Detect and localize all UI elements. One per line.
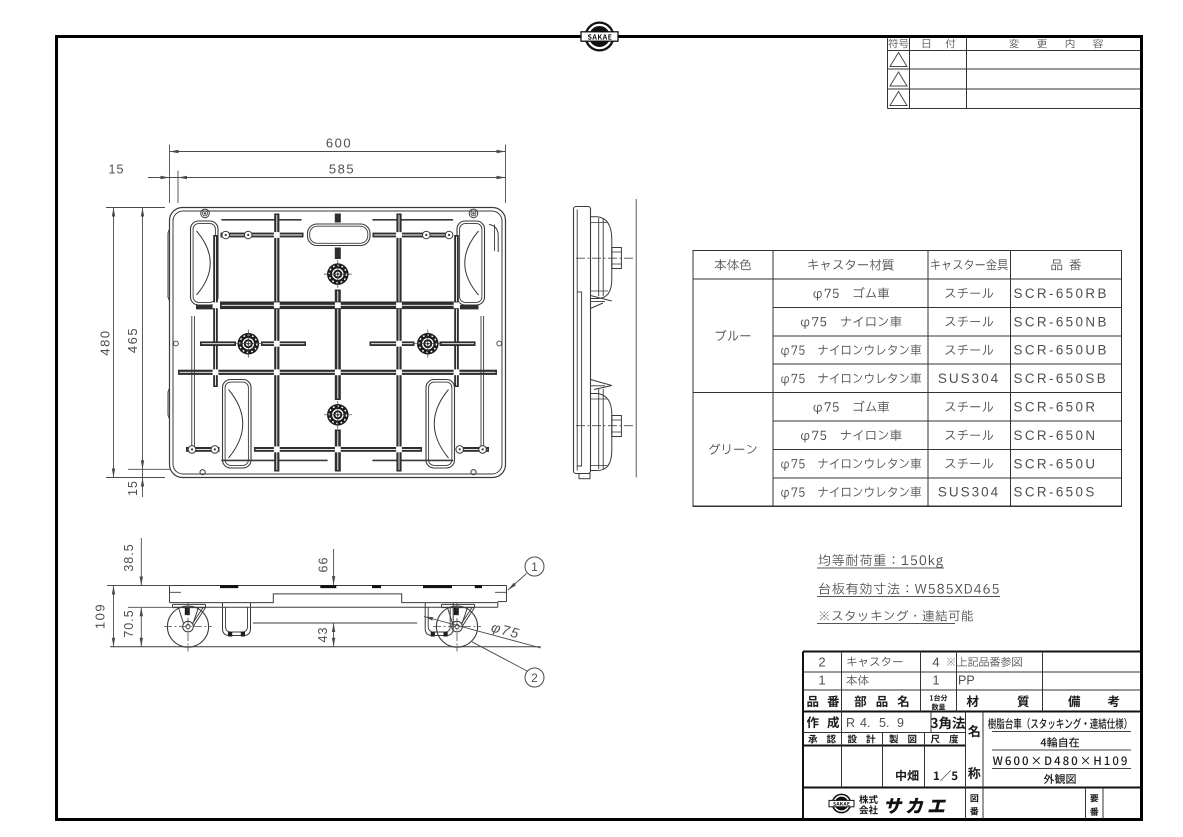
svg-text:R: R xyxy=(846,716,855,730)
svg-text:SCR-650UB: SCR-650UB xyxy=(1014,343,1109,358)
svg-text:15: 15 xyxy=(126,480,140,496)
svg-text:465: 465 xyxy=(125,327,140,353)
svg-text:70.5: 70.5 xyxy=(122,609,136,637)
svg-text:SCR-650U: SCR-650U xyxy=(1014,456,1098,471)
svg-text:9: 9 xyxy=(897,716,904,730)
svg-text:15: 15 xyxy=(109,163,125,177)
svg-text:1: 1 xyxy=(531,560,538,574)
svg-text:4.: 4. xyxy=(860,716,870,730)
svg-text:43: 43 xyxy=(316,627,330,643)
svg-text:600: 600 xyxy=(326,136,352,151)
svg-text:SCR-650N: SCR-650N xyxy=(1014,428,1098,443)
svg-text:38.5: 38.5 xyxy=(122,543,136,571)
svg-text:SCR-650R: SCR-650R xyxy=(1014,400,1098,415)
svg-text:SCR-650SB: SCR-650SB xyxy=(1014,371,1109,386)
svg-text:66: 66 xyxy=(317,557,331,573)
svg-text:SCR-650NB: SCR-650NB xyxy=(1014,314,1109,329)
svg-text:SUS304: SUS304 xyxy=(938,485,1000,500)
svg-text:1: 1 xyxy=(818,673,825,688)
svg-text:4: 4 xyxy=(932,655,939,670)
svg-text:109: 109 xyxy=(93,603,108,629)
svg-text:480: 480 xyxy=(98,329,113,355)
svg-text:585: 585 xyxy=(329,162,355,177)
svg-text:SCR-650RB: SCR-650RB xyxy=(1014,286,1109,301)
svg-text:PP: PP xyxy=(958,674,975,688)
svg-text:2: 2 xyxy=(531,671,538,685)
svg-text:1: 1 xyxy=(932,673,939,688)
svg-text:SCR-650S: SCR-650S xyxy=(1014,485,1097,500)
svg-text:5.: 5. xyxy=(879,716,889,730)
svg-text:SUS304: SUS304 xyxy=(938,371,1000,386)
svg-text:2: 2 xyxy=(818,655,825,670)
